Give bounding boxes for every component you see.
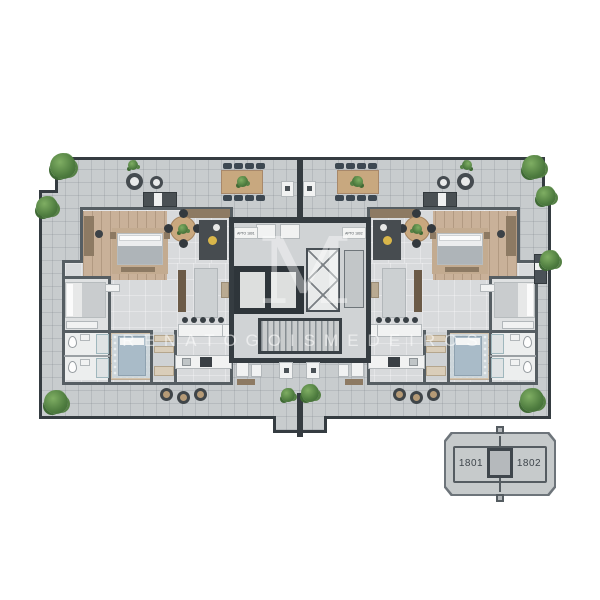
dresser2: [502, 321, 534, 329]
kitchen-sink: [182, 358, 191, 366]
pouf-yellow: [383, 236, 392, 245]
bar-stool: [403, 317, 409, 323]
toilet: [68, 361, 77, 373]
sink: [80, 359, 90, 366]
pouf-yellow: [208, 236, 217, 245]
ac-unit: [303, 181, 316, 197]
outdoor-chair: [256, 163, 265, 169]
nightstand: [484, 232, 490, 239]
terrace-planter: [128, 160, 138, 170]
utility-box: [236, 362, 249, 377]
desk: [506, 216, 516, 256]
outdoor-chair: [357, 195, 366, 201]
terrace-stool: [194, 388, 207, 401]
bed-bench: [445, 267, 479, 272]
corner-plant: [522, 155, 546, 179]
bed2-blanket: [495, 283, 518, 317]
bed2-pillows: [67, 284, 73, 316]
keyplan-unit-1801: 1801: [456, 458, 486, 469]
corner-plant: [520, 388, 544, 412]
core-bottom-wall: [229, 358, 371, 363]
wall: [62, 382, 233, 385]
dining-chair: [427, 224, 436, 233]
terrace-planter: [462, 160, 472, 170]
outdoor-chair: [346, 163, 355, 169]
desk-chair: [497, 230, 505, 238]
ac-vent: [284, 368, 289, 373]
edge-plant: [540, 250, 560, 270]
shower: [96, 358, 109, 378]
bar-stool: [209, 317, 215, 323]
desk: [84, 216, 94, 256]
outdoor-chair: [357, 163, 366, 169]
terrace-stool: [427, 388, 440, 401]
ac-unit: [281, 181, 294, 197]
edge-plant: [36, 196, 58, 218]
nightstand: [430, 232, 436, 239]
pouf-white: [380, 224, 387, 231]
round-lounge-cushion: [440, 179, 447, 186]
pouf-white: [213, 224, 220, 231]
wall: [489, 276, 537, 279]
utility-box: [251, 364, 262, 377]
dresser2: [66, 321, 98, 329]
keyplan-tab-bottom: [496, 494, 504, 502]
terrace-stool: [160, 388, 173, 401]
ac-unit: [306, 362, 320, 379]
wall: [62, 260, 83, 263]
nightstand: [164, 232, 170, 239]
bed-pillows: [439, 235, 481, 241]
outdoor-chair: [335, 195, 344, 201]
outdoor-chair: [245, 163, 254, 169]
desk-chair: [95, 230, 103, 238]
bar-stool: [191, 317, 197, 323]
outdoor-chair: [368, 195, 377, 201]
outdoor-chair: [256, 195, 265, 201]
outdoor-chair: [245, 195, 254, 201]
watermark-name: RENATOGOISMEDEIROS: [0, 331, 600, 351]
table-plant: [178, 224, 188, 234]
keyplan-core: [487, 448, 513, 478]
outdoor-bench: [345, 379, 363, 385]
bed2-blanket: [82, 283, 105, 317]
edge-plant: [536, 186, 556, 206]
terrace-stool: [410, 391, 423, 404]
bar-stool: [200, 317, 206, 323]
keyplan-tab-top: [496, 426, 504, 434]
bar-stool: [385, 317, 391, 323]
ac-vent: [311, 368, 316, 373]
coffee-table: [221, 282, 229, 298]
tv-unit: [178, 270, 186, 312]
kitchen-sink: [409, 358, 418, 366]
bar-stool: [182, 317, 188, 323]
round-lounge-cushion: [153, 179, 160, 186]
tv-unit: [414, 270, 422, 312]
keyplan: 1801 1802: [440, 424, 560, 504]
outdoor-chair: [346, 195, 355, 201]
corner-plant: [50, 153, 76, 179]
bar-stool: [412, 317, 418, 323]
closet-shelf: [426, 366, 446, 376]
outdoor-chair: [223, 163, 232, 169]
outdoor-chair: [223, 195, 232, 201]
ac-vent: [285, 186, 290, 191]
round-lounge-cushion: [461, 177, 470, 186]
shower: [491, 358, 504, 378]
terrace-stool: [177, 391, 190, 404]
terrace-plant: [301, 384, 319, 402]
keyplan-unit-1802: 1802: [514, 458, 544, 469]
dining-chair: [164, 224, 173, 233]
bar-stool: [218, 317, 224, 323]
bathroom-divider-wall: [64, 355, 110, 357]
bed-blanket: [118, 246, 162, 264]
terrace-divider-wall-bottom: [297, 393, 303, 437]
terrace-stool: [393, 388, 406, 401]
sink: [510, 359, 520, 366]
closet-shelf: [154, 366, 174, 376]
sofa-throw: [438, 193, 446, 206]
bed-blanket: [438, 246, 482, 264]
floor-plan-image: APTO 1801 APTO 1802 M RENATOGOISMEDEIROS…: [0, 0, 600, 600]
dining-chair: [412, 239, 421, 248]
wall: [517, 207, 520, 263]
bed-bench: [121, 267, 155, 272]
dining-chair: [179, 239, 188, 248]
dining-chair: [179, 209, 188, 218]
bed-pillows: [119, 235, 161, 241]
dining-chair: [412, 209, 421, 218]
terrace-plant: [281, 388, 295, 402]
bathroom-divider-wall: [490, 355, 536, 357]
toilet: [523, 361, 532, 373]
wall: [80, 207, 83, 263]
round-lounge-cushion: [130, 177, 139, 186]
wall: [63, 276, 111, 279]
ac-unit: [279, 362, 293, 379]
coffee-table: [371, 282, 379, 298]
nightstand: [110, 232, 116, 239]
bed2-pillows: [527, 284, 533, 316]
table-centerpiece-plant: [352, 176, 363, 187]
cooktop: [388, 357, 400, 367]
sofa: [382, 268, 406, 318]
outdoor-chair: [234, 163, 243, 169]
bar-stool: [376, 317, 382, 323]
cooktop: [200, 357, 212, 367]
utility-box: [351, 362, 364, 377]
table-centerpiece-plant: [237, 176, 248, 187]
ac-vent: [307, 186, 312, 191]
outdoor-bench: [237, 379, 255, 385]
outdoor-chair: [234, 195, 243, 201]
corner-plant: [44, 390, 68, 414]
outdoor-chair: [368, 163, 377, 169]
watermark-monogram: M: [250, 226, 360, 318]
wall: [367, 382, 538, 385]
outdoor-chair: [335, 163, 344, 169]
sofa: [194, 268, 218, 318]
bar-stool: [394, 317, 400, 323]
table-plant: [412, 224, 422, 234]
sofa-throw: [154, 193, 162, 206]
utility-box: [338, 364, 349, 377]
